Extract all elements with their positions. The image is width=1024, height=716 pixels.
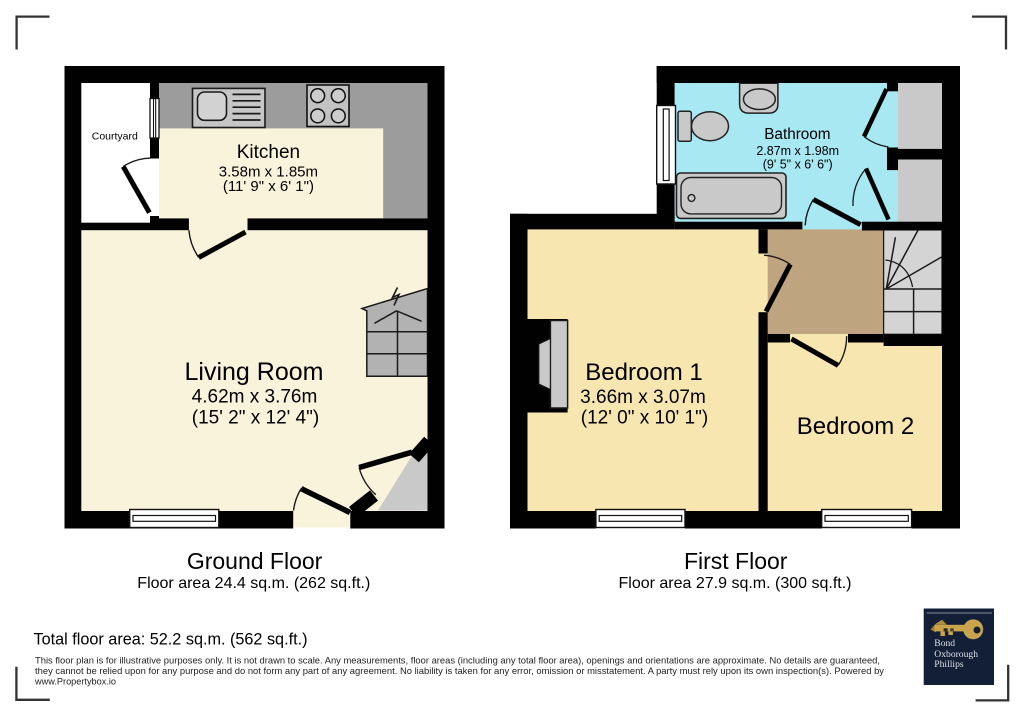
svg-text:Courtyard: Courtyard xyxy=(92,131,138,143)
svg-text:www.Propertybox.io: www.Propertybox.io xyxy=(34,677,116,687)
svg-text:This floor plan is for illustr: This floor plan is for illustrative purp… xyxy=(35,656,880,666)
svg-text:4.62m x 3.76m: 4.62m x 3.76m xyxy=(192,387,318,408)
svg-text:First Floor: First Floor xyxy=(684,548,788,574)
svg-text:they cannot be relied upon for: they cannot be relied upon for any purpo… xyxy=(35,666,884,676)
svg-text:Phillips: Phillips xyxy=(934,659,964,670)
svg-text:Floor area 24.4 sq.m. (262 sq.: Floor area 24.4 sq.m. (262 sq.ft.) xyxy=(137,575,370,592)
svg-text:Floor area 27.9 sq.m. (300 sq.: Floor area 27.9 sq.m. (300 sq.ft.) xyxy=(619,575,852,592)
svg-text:Living Room: Living Room xyxy=(185,358,324,386)
svg-text:Ground Floor: Ground Floor xyxy=(187,548,323,574)
svg-text:Bathroom: Bathroom xyxy=(764,126,830,143)
svg-text:Bond: Bond xyxy=(934,638,955,649)
svg-text:(11' 9" x 6' 1"): (11' 9" x 6' 1") xyxy=(223,178,314,195)
svg-text:(15' 2" x 12' 4"): (15' 2" x 12' 4") xyxy=(192,408,319,429)
svg-text:Bedroom 1: Bedroom 1 xyxy=(585,359,702,386)
svg-text:Total floor area: 52.2 sq.m. (: Total floor area: 52.2 sq.m. (562 sq.ft.… xyxy=(34,631,308,649)
svg-text:Kitchen: Kitchen xyxy=(237,142,300,163)
svg-text:(9' 5" x 6' 6"): (9' 5" x 6' 6") xyxy=(763,157,833,171)
svg-text:(12' 0" x 10' 1"): (12' 0" x 10' 1") xyxy=(581,408,708,429)
svg-text:2.87m x 1.98m: 2.87m x 1.98m xyxy=(756,144,839,158)
svg-text:3.66m x 3.07m: 3.66m x 3.07m xyxy=(580,387,706,408)
svg-text:Bedroom 2: Bedroom 2 xyxy=(797,413,914,440)
